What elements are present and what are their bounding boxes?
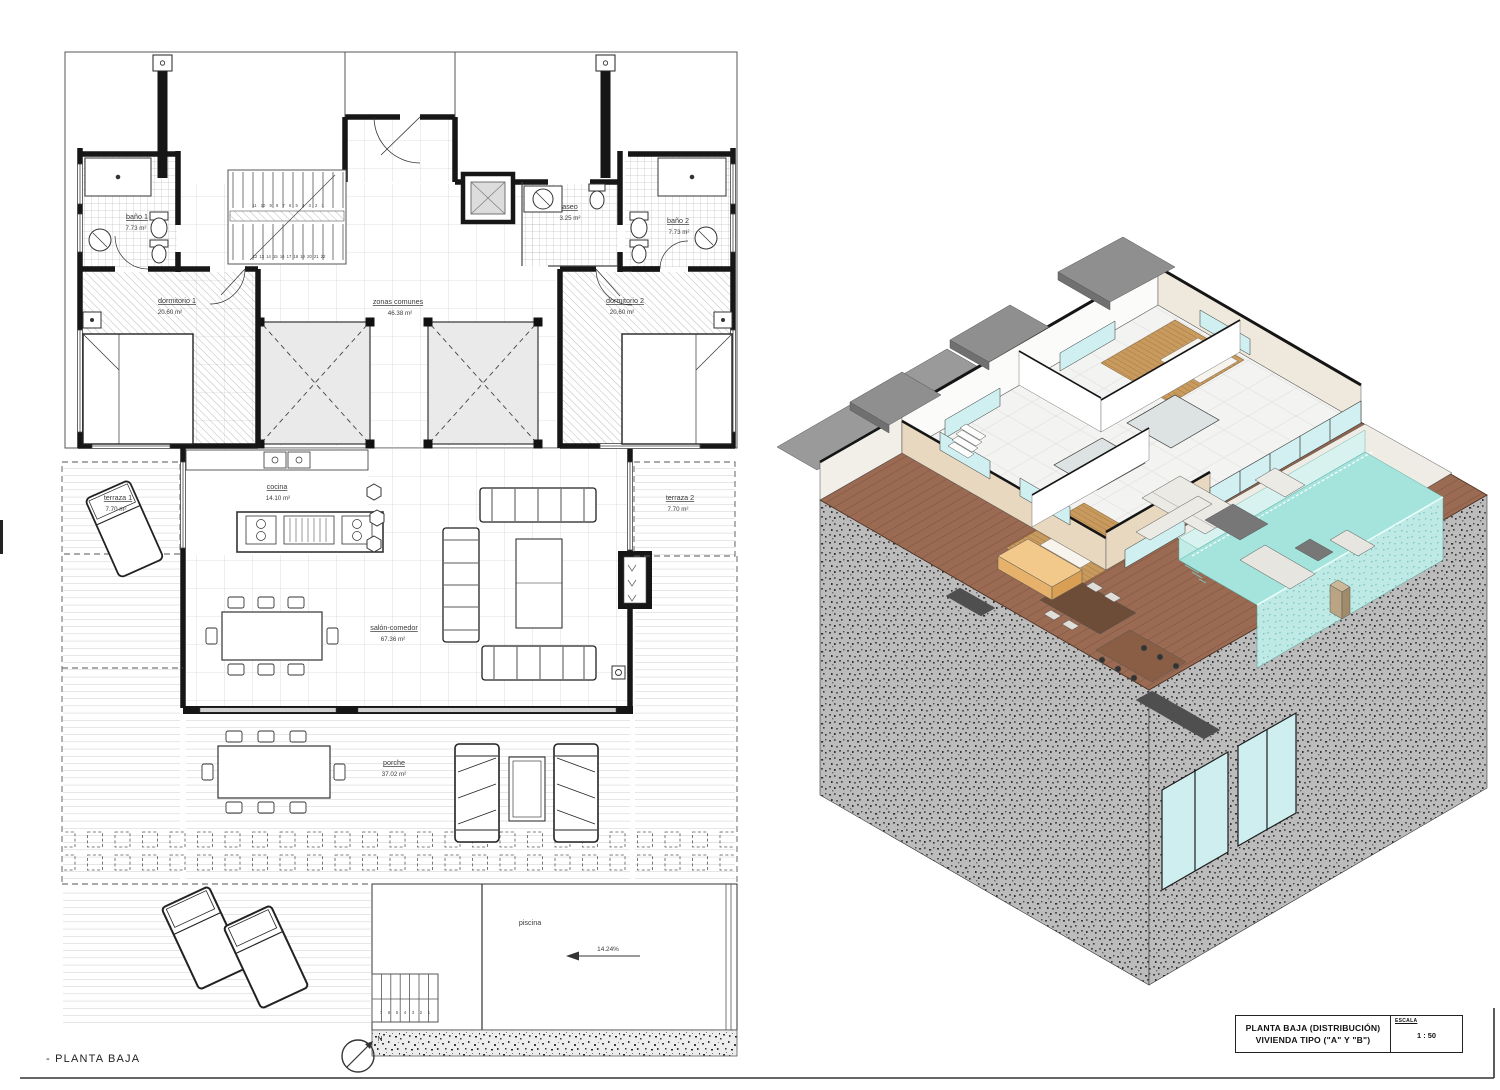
north-label: N xyxy=(377,1036,382,1043)
scale-label: ESCALA xyxy=(1395,1018,1417,1024)
drawing-sheet: baño 1 7.73 m² aseo 3.25 m² baño 2 7.73 … xyxy=(0,0,1500,1090)
room-area-aseo: 3.25 m² xyxy=(560,215,581,222)
courtyard-2 xyxy=(424,318,543,449)
room-label-zonas-comunes: zonas comunes xyxy=(373,297,424,306)
column-marker xyxy=(612,666,625,679)
title-block: PLANTA BAJA (DISTRIBUCIÓN) VIVIENDA TIPO… xyxy=(1235,1015,1463,1053)
title-line-1: PLANTA BAJA (DISTRIBUCIÓN) xyxy=(1246,1022,1381,1034)
gravel-strip xyxy=(372,1030,737,1056)
scale-value: 1 : 50 xyxy=(1391,1031,1462,1040)
room-label-bano2: baño 2 xyxy=(667,216,689,225)
room-label-terraza1: terraza 1 xyxy=(104,493,132,502)
sheet-caption: - PLANTA BAJA xyxy=(46,1053,140,1065)
pool-slope-label: 14.24% xyxy=(597,946,619,953)
room-label-dormitorio1: dormitorio 1 xyxy=(158,296,196,305)
title-block-scale: ESCALA 1 : 50 xyxy=(1390,1016,1462,1052)
room-area-salon-comedor: 67.36 m² xyxy=(381,636,405,643)
courtyard-1 xyxy=(256,318,375,449)
room-area-zonas-comunes: 46.38 m² xyxy=(388,310,412,317)
floor-plan xyxy=(62,52,737,1056)
pergola-posts xyxy=(64,831,734,877)
room-label-aseo: aseo xyxy=(562,202,578,211)
lift-shaft xyxy=(463,174,513,222)
south-glass-wall xyxy=(183,706,633,714)
staircase xyxy=(228,170,346,264)
room-area-dormitorio2: 20.60 m² xyxy=(610,309,634,316)
stair-numbers-lower: 12 13 14 15 16 17 18 19 20 21 22 xyxy=(253,254,327,259)
room-area-porche: 37.02 m² xyxy=(382,771,406,778)
north-arrow xyxy=(342,1040,374,1072)
pool-step-numbers: 7 6 5 4 3 2 1 xyxy=(380,1010,431,1015)
room-label-bano1: baño 1 xyxy=(126,212,148,221)
title-line-2: VIVIENDA TIPO ("A" Y "B") xyxy=(1256,1034,1371,1046)
room-label-dormitorio2: dormitorio 2 xyxy=(606,296,644,305)
room-label-piscina: piscina xyxy=(519,918,541,927)
room-area-terraza2: 7.70 m² xyxy=(668,506,689,513)
room-area-dormitorio1: 20.60 m² xyxy=(158,309,182,316)
stair-numbers-upper: 11 10 9 8 7 6 5 4 3 2 1 xyxy=(252,203,324,208)
room-area-bano1: 7.73 m² xyxy=(126,225,147,232)
room-label-terraza2: terraza 2 xyxy=(666,493,694,502)
room-area-bano2: 7.73 m² xyxy=(669,229,690,236)
room-label-porche: porche xyxy=(383,758,405,767)
plan-canvas: baño 1 7.73 m² aseo 3.25 m² baño 2 7.73 … xyxy=(0,0,1500,1090)
room-area-terraza1: 7.70 m² xyxy=(106,506,127,513)
room-label-cocina: cocina xyxy=(267,482,288,491)
title-block-main: PLANTA BAJA (DISTRIBUCIÓN) VIVIENDA TIPO… xyxy=(1236,1016,1390,1052)
room-area-cocina: 14.10 m² xyxy=(266,495,290,502)
room-label-salon-comedor: salón-comedor xyxy=(370,623,418,632)
fireplace xyxy=(618,551,652,609)
pool-area xyxy=(372,884,737,1030)
axonometric-view xyxy=(777,237,1487,985)
